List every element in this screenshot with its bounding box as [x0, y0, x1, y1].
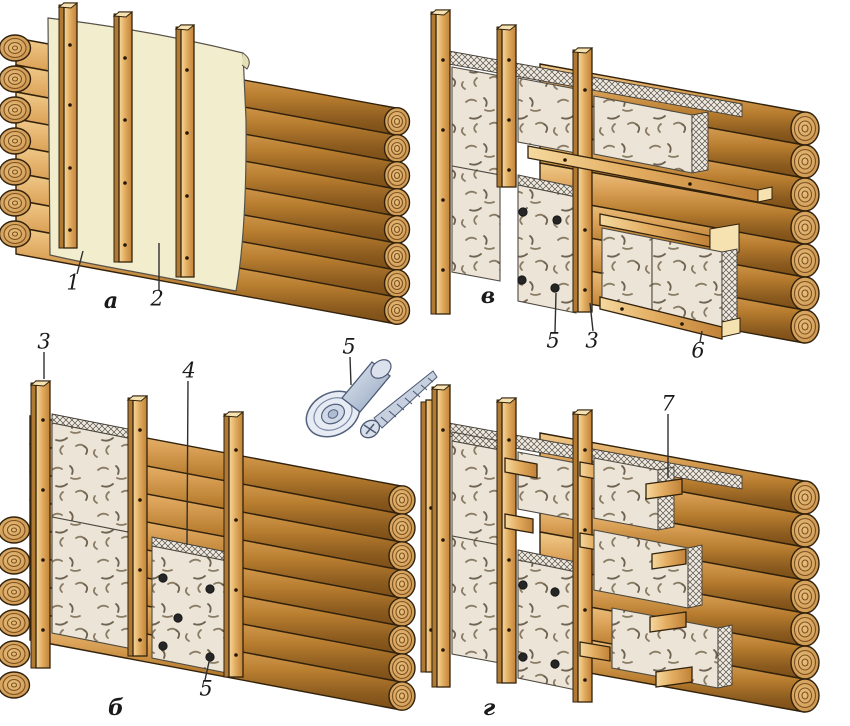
- diagram-g-blocks-stage: [421, 385, 819, 712]
- insulation-board: [518, 560, 576, 690]
- insulation-side-edge: [692, 112, 708, 173]
- batten: [573, 410, 592, 702]
- batten: [497, 25, 516, 187]
- figure-letter-b: б: [108, 697, 124, 719]
- batten: [573, 48, 592, 312]
- figure-canvas: 1 а 2 в 5 3 6 5 3 4 5 б 7 г: [0, 0, 850, 726]
- callout-3-batten: 3: [585, 331, 598, 352]
- insulation-side-edge: [688, 545, 702, 608]
- callout-1-batten: 1: [66, 273, 79, 294]
- figure-letter-g: г: [483, 697, 495, 719]
- fastener-illustration: [298, 356, 437, 446]
- batten: [432, 385, 450, 687]
- insulation-board: [452, 166, 500, 281]
- callout-4-insulation-edge: 4: [182, 361, 195, 382]
- batten: [176, 25, 194, 277]
- callout-2-membrane: 2: [150, 289, 163, 310]
- batten: [431, 10, 450, 314]
- insulation-board: [152, 546, 227, 673]
- callout-5-dowel: 5: [199, 679, 212, 700]
- insulation-board: [518, 185, 576, 313]
- batten: [128, 396, 147, 656]
- batten: [114, 12, 132, 262]
- callout-7-block: 7: [661, 394, 674, 415]
- insulation-side-edge: [658, 467, 674, 530]
- batten: [31, 381, 50, 668]
- vapour-membrane-sheet: [48, 18, 246, 291]
- batten: [224, 412, 243, 677]
- insulation-board: [52, 517, 133, 649]
- diagram-a-membrane-stage: [0, 3, 410, 324]
- callout-5-dowel: 5: [546, 331, 559, 352]
- batten: [59, 3, 77, 248]
- insulation-board: [452, 67, 500, 175]
- diagram-b-first-layer-stage: [0, 381, 415, 710]
- callout-6-rail: 6: [691, 341, 704, 362]
- figure-letter-a: а: [104, 290, 118, 312]
- insulation-board: [518, 78, 576, 153]
- batten: [497, 398, 516, 683]
- insulation-board: [52, 423, 133, 533]
- figure-letter-v: в: [481, 285, 495, 307]
- insulation-board: [452, 441, 500, 545]
- callout-3-batten: 3: [37, 332, 50, 353]
- callout-5-fastener: 5: [342, 337, 355, 358]
- insulation-board: [452, 536, 500, 663]
- insulation-side-edge: [718, 625, 732, 688]
- log-wall-insulation-diagram: [0, 0, 850, 726]
